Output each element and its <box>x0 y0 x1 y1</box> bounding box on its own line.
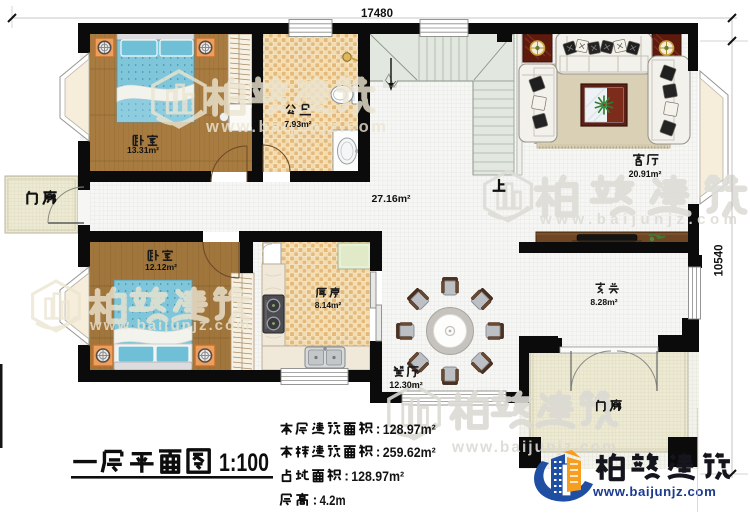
svg-text::: : <box>376 444 381 460</box>
svg-text:259.62m²: 259.62m² <box>383 444 436 460</box>
svg-text:4.2m: 4.2m <box>320 492 346 508</box>
svg-text:www.baijunjz.com: www.baijunjz.com <box>539 211 741 228</box>
svg-text:7.93m²: 7.93m² <box>284 119 311 129</box>
svg-text:13.31m²: 13.31m² <box>127 145 159 155</box>
svg-text:128.97m²: 128.97m² <box>351 468 404 484</box>
svg-text:12.30m²: 12.30m² <box>389 380 423 390</box>
svg-text:20.91m²: 20.91m² <box>629 169 662 179</box>
svg-text:10540: 10540 <box>714 245 726 277</box>
svg-text::: : <box>376 421 381 437</box>
svg-text:27.16m²: 27.16m² <box>371 193 411 205</box>
svg-text::: : <box>344 468 349 484</box>
svg-text:12.12m²: 12.12m² <box>145 262 177 272</box>
svg-text:www.baijunjz.com: www.baijunjz.com <box>451 439 618 456</box>
svg-text::: : <box>313 492 318 508</box>
svg-text:1:100: 1:100 <box>219 449 269 477</box>
svg-text:128.97m²: 128.97m² <box>383 421 436 437</box>
svg-text:17480: 17480 <box>361 8 393 20</box>
svg-text:8.28m²: 8.28m² <box>590 297 617 307</box>
svg-text:8.14m²: 8.14m² <box>315 300 342 310</box>
svg-text:www.baijunjz.com: www.baijunjz.com <box>89 317 251 334</box>
